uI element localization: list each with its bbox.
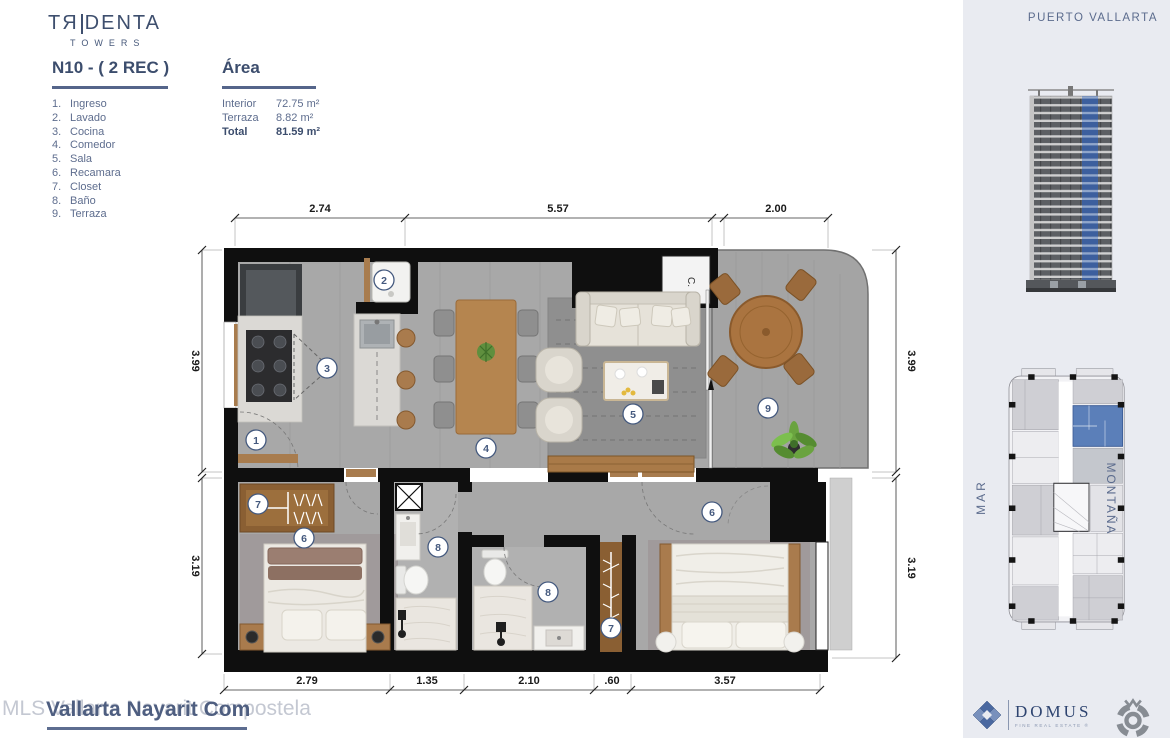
area-title-rule: [222, 86, 316, 89]
marker-bano-1: 8: [428, 537, 448, 557]
dim-bottom-2: 1.35: [416, 675, 437, 687]
svg-text:7: 7: [255, 499, 261, 511]
domus-wordmark: DOMUS: [1015, 702, 1091, 722]
tower-illustration: [1020, 83, 1122, 293]
svg-text:8: 8: [545, 587, 551, 599]
legend-item: 7.Closet: [52, 181, 121, 195]
sidebar: PUERTO VALLARTA: [963, 0, 1170, 738]
domus-logo: DOMUS FINE REAL ESTATE ®: [972, 700, 1091, 730]
area-title: Área: [222, 58, 316, 78]
dim-bottom-4: .60: [604, 675, 619, 687]
room-legend: 1.Ingreso 2.Lavado 3.Cocina 4.Comedor 5.…: [52, 98, 121, 222]
domus-tagline: FINE REAL ESTATE ®: [1015, 723, 1091, 728]
unit-title-rule: [52, 86, 168, 89]
area-row-total: Total81.59 m²: [222, 126, 320, 140]
dim-right-2: 3.19: [905, 557, 917, 578]
floorplan: 2.74 5.57 2.00 3.99 3.19 3.99 3.19 2.79 …: [160, 195, 930, 710]
dim-left-1: 3.99: [189, 350, 201, 371]
svg-text:3: 3: [324, 363, 330, 375]
legend-item: 8.Baño: [52, 195, 121, 209]
svg-text:1: 1: [253, 435, 259, 447]
dim-top-3: 2.00: [765, 203, 786, 215]
svg-text:9: 9: [765, 403, 771, 415]
toilet1: [404, 566, 428, 594]
unit-title: N10 - ( 2 REC ): [52, 58, 169, 78]
tridenta-wordmark: TЯDENTA: [48, 12, 161, 35]
domus-divider: [1008, 700, 1009, 730]
developer-emblem-icon: [1113, 697, 1153, 737]
logo-subtitle: TOWERS: [70, 38, 161, 48]
svg-text:6: 6: [301, 533, 307, 545]
svg-text:6: 6: [709, 507, 715, 519]
dim-bottom-1: 2.79: [296, 675, 317, 687]
dim-right-1: 3.99: [905, 350, 917, 371]
closet-c-label: C.: [685, 277, 696, 287]
logo-right: DENTA: [85, 12, 161, 35]
unit-header: N10 - ( 2 REC ): [52, 58, 169, 89]
marker-lavado: 2: [374, 270, 394, 290]
marker-cocina: 3: [317, 358, 337, 378]
toilet2: [484, 559, 506, 585]
marker-sala: 5: [623, 404, 643, 424]
keyplan-label-montana: MONTAÑA: [1104, 454, 1118, 544]
svg-text:4: 4: [483, 443, 489, 455]
legend-item: 3.Cocina: [52, 126, 121, 140]
tridenta-logo: TЯDENTA TOWERS: [48, 12, 161, 48]
svg-text:7: 7: [608, 623, 614, 635]
dining: [434, 300, 538, 434]
dim-top-1: 2.74: [309, 203, 331, 215]
area-header: Área: [222, 58, 316, 89]
domus-pinwheel-icon: [972, 700, 1002, 730]
logo-divider-bar: [81, 14, 83, 34]
logo-left: TЯ: [48, 12, 79, 35]
marker-ingreso: 1: [246, 430, 266, 450]
dim-top-2: 5.57: [547, 203, 568, 215]
area-row: Interior72.75 m²: [222, 98, 320, 112]
marker-recamara-1: 6: [294, 528, 314, 548]
legend-item: 9.Terraza: [52, 208, 121, 222]
location-label: PUERTO VALLARTA: [1028, 12, 1158, 24]
marker-recamara-2: 6: [702, 502, 722, 522]
dim-bottom-3: 2.10: [518, 675, 539, 687]
svg-text:5: 5: [630, 409, 636, 421]
marker-closet-1: 7: [248, 494, 268, 514]
marker-comedor: 4: [476, 438, 496, 458]
legend-item: 2.Lavado: [52, 112, 121, 126]
legend-item: 6.Recamara: [52, 167, 121, 181]
dining-table: [456, 300, 516, 434]
mls-watermark-dark: Vallarta Nayarit Com: [46, 698, 250, 722]
svg-text:8: 8: [435, 542, 441, 554]
area-row: Terraza8.82 m²: [222, 112, 320, 126]
dim-bottom-5: 3.57: [714, 675, 735, 687]
tower-highlight-stripe: [1082, 96, 1098, 280]
marker-terraza: 9: [758, 398, 778, 418]
marker-bano-2: 8: [538, 582, 558, 602]
svg-text:2: 2: [381, 275, 387, 287]
legend-item: 5.Sala: [52, 153, 121, 167]
marker-closet-2: 7: [601, 618, 621, 638]
brochure-page: TЯDENTA TOWERS N10 - ( 2 REC ) Área 1.In…: [0, 0, 1170, 738]
area-table: Interior72.75 m² Terraza8.82 m² Total81.…: [222, 98, 320, 139]
legend-item: 4.Comedor: [52, 139, 121, 153]
legend-item: 1.Ingreso: [52, 98, 121, 112]
bar-stools: [397, 329, 415, 429]
dim-left-2: 3.19: [189, 555, 201, 576]
keyplan-label-mar: MAR: [974, 467, 988, 527]
mls-watermark-underline: [47, 727, 247, 730]
